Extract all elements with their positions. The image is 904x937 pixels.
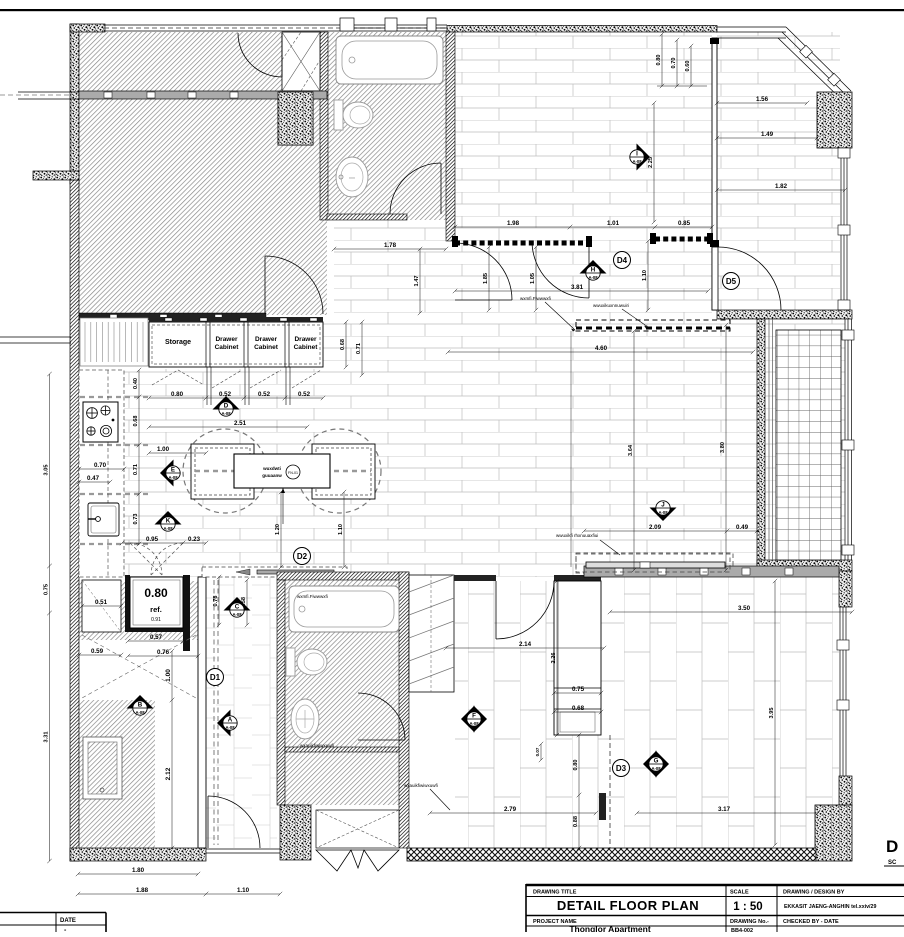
svg-text:-: -	[64, 927, 67, 932]
svg-text:0.71: 0.71	[133, 464, 139, 475]
svg-text:A-08: A-08	[135, 710, 145, 715]
svg-text:2.12: 2.12	[165, 767, 172, 780]
svg-text:1.82: 1.82	[775, 183, 788, 190]
svg-text:1.00: 1.00	[157, 446, 170, 453]
svg-text:0.76: 0.76	[157, 649, 170, 656]
svg-text:0.78: 0.78	[213, 596, 219, 607]
svg-text:1.47: 1.47	[414, 276, 420, 287]
svg-text:DRAWING TITLE: DRAWING TITLE	[533, 890, 577, 896]
svg-text:DETAIL FLOOR PLAN: DETAIL FLOOR PLAN	[557, 898, 699, 913]
svg-text:2.09: 2.09	[649, 524, 662, 531]
svg-text:E: E	[171, 467, 175, 474]
svg-text:FN-01: FN-01	[288, 471, 298, 475]
svg-text:A-08: A-08	[651, 766, 661, 771]
svg-text:Storage: Storage	[165, 339, 191, 346]
svg-text:1.98: 1.98	[507, 220, 520, 227]
svg-text:wxauikfiwiwxuwfi: wxauikfiwiwxuwfi	[300, 743, 334, 748]
svg-text:ref.: ref.	[150, 605, 162, 614]
svg-text:Cabinet: Cabinet	[294, 344, 319, 351]
svg-text:wxauikfiwiwxuwfi: wxauikfiwiwxuwfi	[404, 783, 438, 788]
svg-text:D2: D2	[297, 552, 308, 561]
svg-text:3.50: 3.50	[738, 605, 751, 612]
svg-text:0.07: 0.07	[535, 747, 540, 756]
svg-text:A-08: A-08	[658, 510, 668, 515]
svg-text:A-08: A-08	[221, 411, 231, 416]
svg-text:2.51: 2.51	[234, 420, 247, 427]
svg-text:DRAWING / DESIGN BY: DRAWING / DESIGN BY	[783, 890, 845, 896]
svg-text:guuaanw: guuaanw	[262, 473, 282, 478]
svg-text:0.70: 0.70	[94, 462, 107, 469]
svg-text:1.49: 1.49	[761, 131, 774, 138]
svg-text:A-08: A-08	[469, 721, 479, 726]
svg-text:I: I	[636, 151, 638, 158]
svg-text:0.71: 0.71	[356, 343, 362, 354]
svg-text:0.80: 0.80	[144, 586, 168, 600]
svg-text:D: D	[886, 837, 898, 856]
svg-text:0.57: 0.57	[150, 634, 163, 641]
svg-text:4.60: 4.60	[595, 345, 608, 352]
svg-text:Thonglor Apartment: Thonglor Apartment	[569, 924, 651, 932]
svg-text:F: F	[472, 713, 476, 720]
svg-text:1.78: 1.78	[384, 242, 397, 249]
svg-text:2.26: 2.26	[551, 653, 557, 664]
svg-text:0.40: 0.40	[133, 378, 139, 389]
svg-text:1.10: 1.10	[237, 887, 250, 894]
svg-text:Drawer: Drawer	[215, 336, 238, 343]
svg-text:H: H	[591, 267, 596, 274]
svg-text:0.88: 0.88	[573, 816, 579, 827]
svg-text:1.56: 1.56	[756, 96, 769, 103]
svg-text:0.59: 0.59	[91, 648, 104, 655]
svg-text:1.20: 1.20	[275, 524, 281, 535]
svg-text:0.73: 0.73	[133, 514, 139, 525]
svg-text:0.51: 0.51	[95, 599, 108, 606]
svg-text:B: B	[138, 702, 143, 709]
svg-text:2.79: 2.79	[504, 806, 517, 813]
svg-text:Drawer: Drawer	[255, 336, 278, 343]
svg-text:0.68: 0.68	[572, 705, 585, 712]
svg-text:SC: SC	[888, 860, 897, 866]
svg-text:wxmfi.Fiwwwxfi: wxmfi.Fiwwwxfi	[297, 594, 328, 599]
svg-text:DRAWING No.-: DRAWING No.-	[730, 919, 769, 925]
svg-text:SCALE: SCALE	[730, 890, 749, 896]
svg-text:0.80: 0.80	[656, 55, 662, 66]
svg-text:A: A	[228, 717, 233, 724]
svg-text:DATE: DATE	[60, 918, 76, 924]
svg-text:D3: D3	[616, 764, 627, 773]
svg-text:1.01: 1.01	[607, 220, 620, 227]
svg-text:2.25: 2.25	[648, 157, 654, 168]
svg-text:1.10: 1.10	[338, 524, 344, 535]
svg-text:wxmfi.Fiwwwxfi: wxmfi.Fiwwwxfi	[520, 296, 551, 301]
svg-text:Drawer: Drawer	[294, 336, 317, 343]
svg-text:0.75: 0.75	[44, 584, 50, 595]
svg-text:0.91: 0.91	[151, 617, 161, 623]
svg-text:xxx: xxx	[349, 175, 355, 180]
svg-text:A-08: A-08	[225, 725, 235, 730]
svg-text:3.31: 3.31	[44, 732, 50, 743]
svg-text:1.80: 1.80	[132, 867, 145, 874]
svg-text:0.80: 0.80	[171, 391, 184, 398]
svg-text:1.05: 1.05	[530, 273, 536, 284]
svg-text:CHECKED BY - DATE: CHECKED BY - DATE	[783, 919, 839, 925]
svg-text:0.85: 0.85	[678, 220, 691, 227]
svg-text:1.10: 1.10	[642, 270, 648, 281]
svg-text:BB4-002: BB4-002	[731, 928, 753, 932]
svg-text:D1: D1	[210, 673, 221, 682]
svg-text:0.49: 0.49	[736, 524, 749, 531]
svg-text:0.52: 0.52	[258, 391, 271, 398]
svg-text:wuxdwti: wuxdwti	[262, 466, 281, 471]
svg-text:3.95: 3.95	[769, 708, 775, 719]
svg-text:C: C	[235, 604, 240, 611]
svg-text:G: G	[654, 758, 659, 765]
svg-text:0.68: 0.68	[133, 416, 139, 427]
svg-text:2.14: 2.14	[519, 641, 532, 648]
svg-text:0.70: 0.70	[671, 58, 677, 69]
svg-text:EKKASIT JAENG-ANGHIN tel.xx: EKKASIT JAENG-ANGHIN tel.xxiv/29	[784, 904, 876, 910]
svg-text:0.60: 0.60	[685, 61, 691, 72]
svg-text:1 : 50: 1 : 50	[733, 901, 762, 913]
svg-text:A-08: A-08	[163, 526, 173, 531]
svg-text:J: J	[661, 502, 665, 509]
svg-text:1.88: 1.88	[136, 887, 149, 894]
svg-text:3.64: 3.64	[628, 444, 634, 456]
svg-text:K: K	[166, 518, 171, 525]
svg-text:A-08: A-08	[632, 159, 642, 164]
svg-text:0.47: 0.47	[87, 475, 100, 482]
svg-text:3.80: 3.80	[720, 442, 726, 453]
svg-text:0.80: 0.80	[573, 760, 579, 771]
svg-text:wwuxikuxnnuwuiri: wwuxikuxnnuwuiri	[593, 303, 629, 308]
svg-text:1.00: 1.00	[165, 669, 172, 682]
svg-text:A-08: A-08	[588, 275, 598, 280]
svg-text:0.23: 0.23	[188, 536, 201, 543]
svg-text:wwuxikfi rhxnuuaxfiui: wwuxikfi rhxnuuaxfiui	[556, 533, 598, 538]
svg-text:3.17: 3.17	[718, 806, 731, 813]
svg-text:Cabinet: Cabinet	[215, 344, 240, 351]
svg-text:D5: D5	[726, 277, 737, 286]
svg-text:Cabinet: Cabinet	[254, 344, 279, 351]
svg-text:3.81: 3.81	[571, 284, 584, 291]
svg-text:A-08: A-08	[168, 475, 178, 480]
svg-text:0.52: 0.52	[298, 391, 311, 398]
svg-text:0.95: 0.95	[146, 536, 159, 543]
svg-text:1.85: 1.85	[483, 273, 489, 284]
svg-text:3.05: 3.05	[44, 465, 50, 476]
svg-text:D: D	[224, 403, 229, 410]
svg-text:0.75: 0.75	[572, 686, 585, 693]
svg-text:A-08: A-08	[232, 612, 242, 617]
svg-text:0.68: 0.68	[340, 339, 346, 350]
svg-text:D4: D4	[617, 256, 628, 265]
